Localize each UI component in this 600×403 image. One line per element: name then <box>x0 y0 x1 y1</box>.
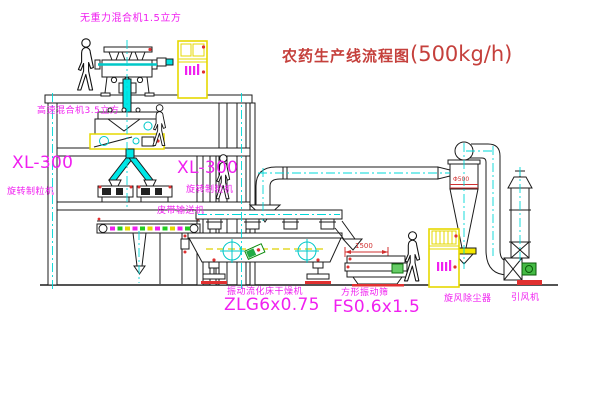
label-belt-conveyor: 皮带输送机 <box>157 207 205 216</box>
label-granulator-left-model: XL-300 <box>12 155 73 172</box>
dimension-sieve-length: 1500 <box>355 243 373 250</box>
diagram-title-capacity: (500kg/h) <box>410 42 512 66</box>
zero-gravity-mixer <box>95 47 173 96</box>
label-granulator-left-name: 旋转制粒机 <box>7 188 55 197</box>
control-cabinet-right <box>429 229 459 287</box>
label-granulator-right-model: XL-300 <box>177 160 238 177</box>
label-dryer-model: ZLG6x0.75 <box>224 297 320 314</box>
label-high-speed-mixer: 高速混合机3.5立方 <box>37 107 119 116</box>
label-granulator-right-name: 旋转制粒机 <box>186 186 234 195</box>
label-zero-gravity-mixer: 无重力混合机1.5立方 <box>80 14 181 24</box>
flow-diagram-page: 无重力混合机1.5立方 农药生产线流程图(500kg/h) 高速混合机3.5立方… <box>0 0 600 403</box>
person-top-platform <box>78 39 94 90</box>
granulator-left <box>96 180 135 202</box>
label-cyclone: 旋风除尘器 <box>444 295 492 304</box>
label-sieve-model: FS0.6x1.5 <box>333 299 420 316</box>
diagram-title: 农药生产线流程图(500kg/h) <box>282 42 512 66</box>
label-fan: 引风机 <box>511 294 540 303</box>
fluid-bed-dryer <box>181 210 362 284</box>
diagram-title-main: 农药生产线流程图 <box>282 47 410 65</box>
dimension-cyclone-diameter: Φ500 <box>453 177 469 183</box>
vibrating-sieve <box>345 247 407 287</box>
granulator-right <box>135 180 174 202</box>
person-ground <box>404 232 419 281</box>
conveyor-belt-segments <box>110 227 190 231</box>
control-cabinet-top <box>178 41 207 98</box>
